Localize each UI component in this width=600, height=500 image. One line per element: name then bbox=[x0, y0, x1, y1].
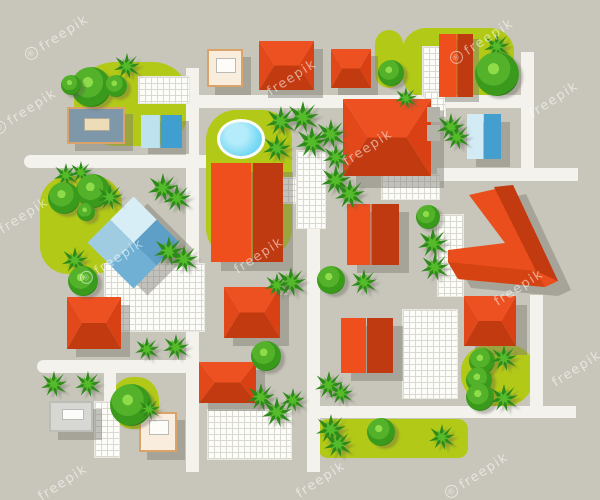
watermark: freepik bbox=[36, 462, 91, 500]
tree-bush bbox=[251, 341, 281, 371]
watermark: freepik bbox=[527, 79, 582, 122]
tree-palm bbox=[351, 269, 377, 295]
red-house-mid-east bbox=[347, 204, 399, 265]
cream-building-top bbox=[207, 49, 243, 87]
tree-bush bbox=[317, 266, 345, 294]
cream-building-bottom-detail bbox=[149, 420, 169, 435]
tree-palm bbox=[335, 179, 365, 209]
tree-bush bbox=[61, 75, 81, 95]
tree-palm bbox=[324, 430, 352, 458]
tree-bush bbox=[475, 52, 519, 96]
cream-building-top-detail bbox=[216, 58, 236, 73]
road-horizontal-upper-left bbox=[24, 155, 206, 168]
blue-gable-building bbox=[467, 114, 501, 159]
tree-palm bbox=[41, 371, 67, 397]
watermark: freepik bbox=[294, 459, 349, 500]
plaza-bottom-right bbox=[402, 309, 458, 399]
tree-palm bbox=[163, 184, 191, 212]
bluegray-building bbox=[67, 107, 125, 144]
tree-palm bbox=[444, 124, 470, 150]
tree-palm bbox=[135, 337, 159, 361]
tree-palm bbox=[97, 184, 123, 210]
bluegray-building-detail bbox=[84, 118, 110, 131]
watermark: freepik bbox=[550, 348, 600, 391]
tree-palm bbox=[75, 371, 101, 397]
tree-palm bbox=[429, 424, 455, 450]
pond bbox=[217, 119, 265, 159]
tree-palm bbox=[265, 273, 289, 297]
tree-palm bbox=[329, 381, 353, 405]
watermark-text: freepik bbox=[527, 79, 582, 122]
red-house-left-south bbox=[67, 297, 121, 349]
tree-palm bbox=[170, 245, 198, 273]
watermark-text: freepik bbox=[36, 462, 91, 500]
red-house-top-2 bbox=[331, 49, 371, 88]
blue-box-building bbox=[141, 115, 182, 148]
watermark-text: freepik bbox=[5, 86, 60, 129]
tree-bush bbox=[367, 418, 395, 446]
watermark-text: freepik bbox=[550, 348, 600, 391]
watermark: ®freepik bbox=[23, 12, 92, 64]
red-gable-bottom-center bbox=[341, 318, 393, 373]
tree-bush bbox=[48, 182, 80, 214]
tree-bush bbox=[77, 203, 95, 221]
tree-palm bbox=[491, 345, 517, 371]
watermark: ®freepik bbox=[0, 86, 59, 138]
tree-palm bbox=[163, 334, 189, 360]
tree-palm bbox=[395, 87, 417, 109]
watermark-text: freepik bbox=[294, 459, 349, 500]
tree-bush bbox=[416, 205, 440, 229]
tree-palm bbox=[421, 253, 449, 281]
tree-bush bbox=[105, 75, 127, 97]
city-map-top-view: ®freepikfreepik®freepik®freepikfreepikfr… bbox=[0, 0, 600, 500]
pavement-topright-1 bbox=[422, 46, 440, 97]
gray-building-bottom-left-detail bbox=[62, 409, 84, 420]
tree-palm bbox=[490, 384, 518, 412]
registered-icon: ® bbox=[23, 44, 41, 62]
watermark-text: freepik bbox=[457, 450, 512, 493]
tree-palm bbox=[138, 398, 160, 420]
registered-icon: ® bbox=[443, 482, 461, 500]
tree-palm bbox=[263, 134, 291, 162]
tree-palm bbox=[281, 388, 305, 412]
tree-bush bbox=[378, 60, 404, 86]
watermark-text: freepik bbox=[37, 12, 92, 55]
pavement-top-left bbox=[138, 76, 190, 104]
gray-building-bottom-left bbox=[49, 401, 93, 432]
